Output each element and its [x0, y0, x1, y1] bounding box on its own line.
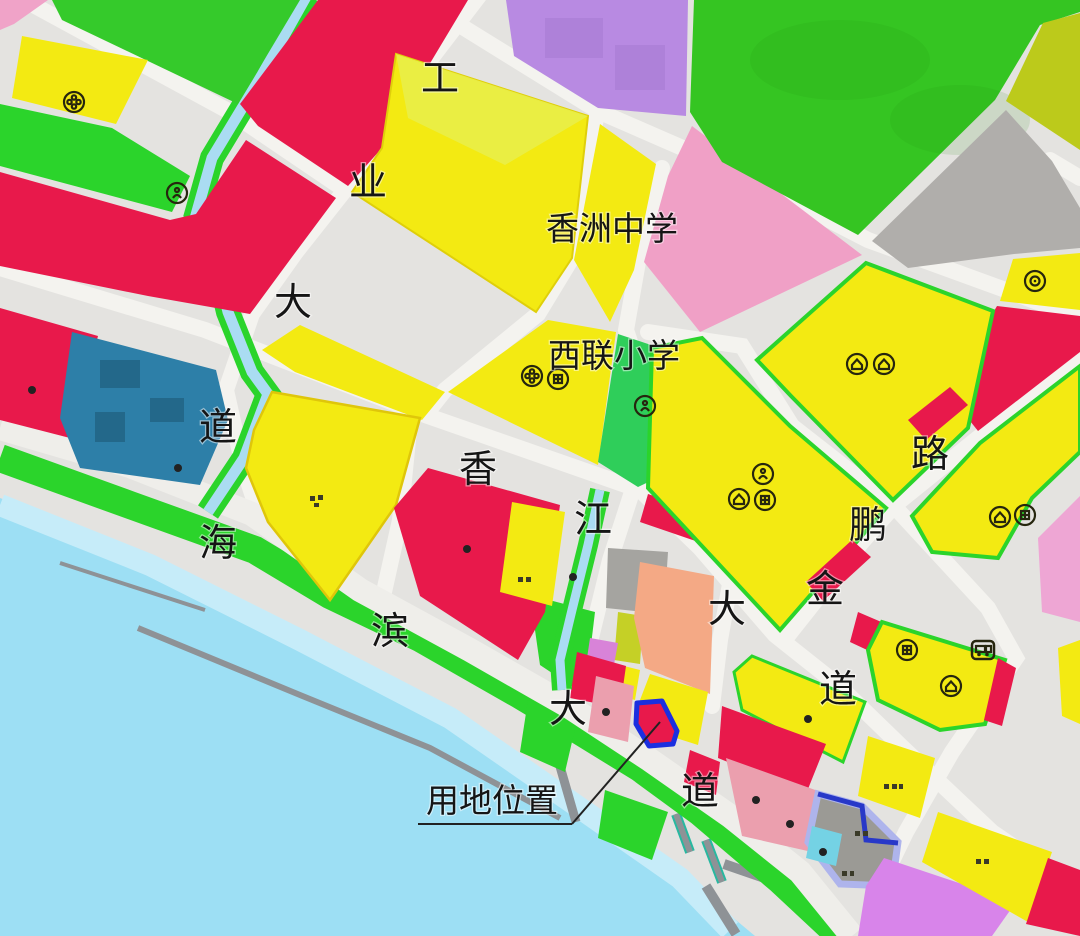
violet-block-buildings [545, 18, 603, 58]
teal-block-buildings [95, 412, 125, 442]
rose-block [588, 676, 634, 742]
road-label-xiangjiang-2: 江 [574, 497, 612, 541]
forest-texture [750, 20, 930, 100]
road-label-jinpeng-2: 鹏 [849, 503, 887, 547]
teal-block-buildings [100, 360, 140, 388]
road-label-xiangjiang-3: 大 [708, 587, 746, 631]
road-label-xiangjiang-4: 道 [819, 667, 857, 711]
road-label-haibin-2: 滨 [371, 609, 409, 653]
road-label-haibin-3: 大 [549, 687, 587, 731]
road-label-xiangjiang-1: 香 [459, 447, 497, 491]
teal-block-buildings [150, 398, 184, 422]
school-label-primary: 西联小学 [548, 336, 680, 375]
site-label: 用地位置 [426, 781, 558, 820]
road-label-haibin-4: 道 [681, 769, 719, 813]
zoning-map: 工 业 大 道 香洲中学 西联小学 香 江 大 道 海 滨 大 道 金 鹏 路 … [0, 0, 1080, 936]
road-label-industrial-3: 大 [274, 280, 312, 324]
road-label-jinpeng-1: 金 [806, 567, 844, 611]
road-label-industrial-4: 道 [199, 405, 237, 449]
road-label-jinpeng-3: 路 [911, 432, 949, 476]
violet-block-buildings [615, 45, 665, 90]
road-label-industrial-1: 工 [421, 56, 459, 100]
road-label-industrial-2: 业 [349, 160, 387, 204]
school-label-middle: 香洲中学 [546, 209, 678, 248]
road-label-haibin-1: 海 [199, 521, 237, 565]
